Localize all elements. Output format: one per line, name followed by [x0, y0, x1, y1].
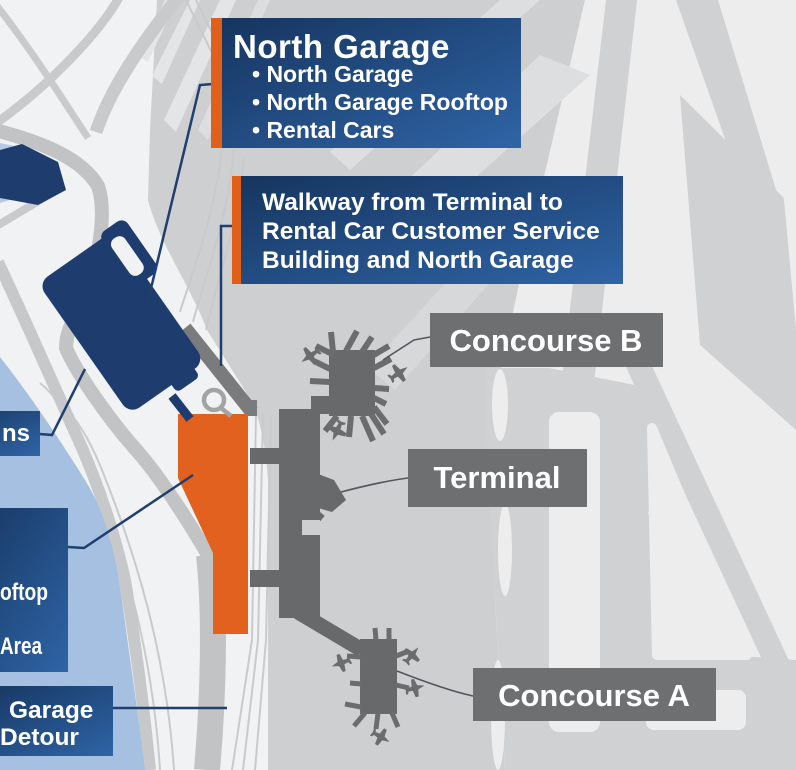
svg-text:Building and North Garage: Building and North Garage — [262, 247, 574, 274]
svg-text:Detour: Detour — [0, 724, 79, 751]
svg-text:• North Garage: • North Garage — [252, 61, 413, 87]
svg-text:Concourse B: Concourse B — [450, 323, 643, 358]
svg-text:Garage: Garage — [9, 697, 93, 724]
svg-text:Concourse A: Concourse A — [498, 678, 690, 713]
svg-text:North Garage: North Garage — [233, 28, 450, 65]
svg-text:Rental Car Customer Service: Rental Car Customer Service — [262, 218, 600, 245]
svg-text:Area: Area — [0, 633, 43, 660]
svg-text:Terminal: Terminal — [434, 460, 561, 495]
svg-text:ns: ns — [2, 420, 30, 447]
svg-text:oftop: oftop — [0, 579, 48, 606]
svg-text:Walkway from Terminal to: Walkway from Terminal to — [262, 189, 563, 216]
svg-text:• North Garage Rooftop: • North Garage Rooftop — [252, 89, 508, 115]
svg-text:• Rental Cars: • Rental Cars — [252, 117, 394, 143]
